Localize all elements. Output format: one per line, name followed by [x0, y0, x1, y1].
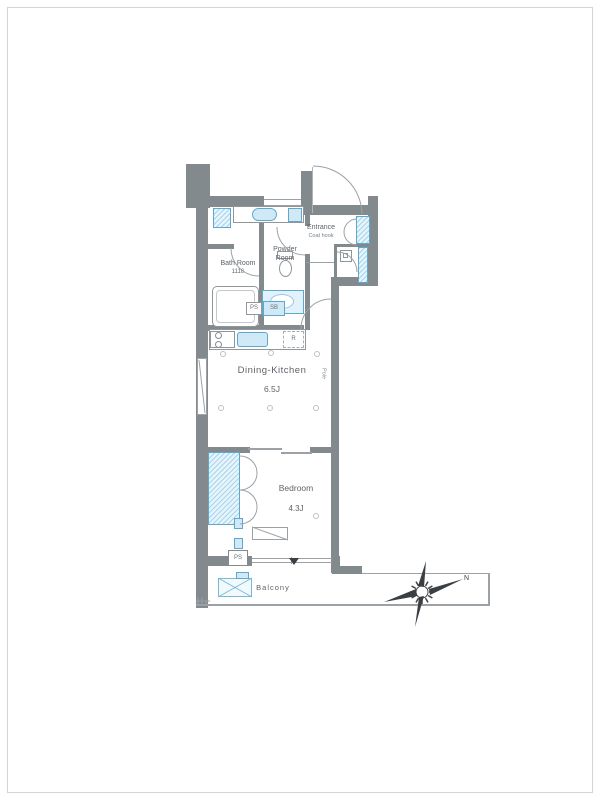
wall-right-main	[331, 286, 339, 573]
room-size-bedroom: 4.3J	[244, 504, 348, 514]
image-border-frame	[7, 7, 593, 793]
ceiling-light-icon	[313, 405, 319, 411]
ceiling-light-icon	[220, 351, 226, 357]
ceiling-light-icon	[314, 351, 320, 357]
floor-plan-canvas: R PS SB PS Bath Room 1116 Powder Room En…	[0, 0, 600, 800]
window-top	[264, 199, 301, 206]
kitchen-stove	[210, 331, 235, 348]
balcony-edge-right	[488, 573, 490, 606]
entrance-storage-strip	[358, 247, 368, 283]
refrigerator-label: R	[284, 336, 303, 343]
sliding-door-panel-2	[281, 452, 312, 454]
evacuation-hatch-tag	[236, 572, 249, 579]
ceiling-light-icon	[313, 513, 319, 519]
room-label-entrance: Entrance	[294, 224, 348, 232]
pipe-shaft-upper-label: PS	[247, 305, 261, 312]
balcony-edge-bottom	[196, 604, 490, 606]
room-note-coat-hook: Coat hook	[294, 233, 348, 240]
pipe-shaft-lower: PS	[228, 550, 248, 566]
refrigerator-space: R	[283, 331, 304, 348]
room-label-bath: Bath Room	[214, 260, 262, 268]
ceiling-light-icon	[218, 405, 224, 411]
wall-bath-top	[208, 244, 234, 249]
window-left-wall	[197, 358, 207, 415]
pipe-shaft-lower-label: PS	[229, 555, 247, 562]
sliding-door-panel-1	[248, 448, 282, 450]
sb-box-label: SB	[264, 305, 284, 312]
wall-step-right	[331, 277, 378, 286]
pipe-shaft-upper: PS	[246, 302, 262, 315]
room-size-dining-kitchen: 6.5J	[213, 384, 331, 394]
wall-dk-bedroom-right	[310, 447, 339, 453]
room-label-dining-kitchen: Dining-Kitchen	[213, 365, 331, 376]
room-label-powder-2: Room	[263, 255, 307, 263]
washing-machine-space	[213, 208, 231, 228]
wall-fixture-2	[234, 538, 243, 549]
room-size-bath: 1116	[214, 269, 262, 276]
wall-balcony-stub	[332, 566, 362, 574]
ceiling-light-icon	[267, 405, 273, 411]
wall-fixture-1	[234, 518, 243, 529]
room-label-balcony: Balcony	[240, 583, 306, 592]
bedroom-closet	[208, 452, 240, 525]
sb-box: SB	[263, 301, 285, 316]
window-center-marker-icon	[289, 558, 299, 565]
stove-burner-2	[215, 341, 222, 348]
shoe-closet	[356, 216, 370, 244]
pole-note-vertical: Pole	[320, 368, 327, 379]
kitchen-sink	[237, 332, 268, 347]
balcony-edge-top-right	[362, 573, 488, 574]
room-label-powder-1: Powder	[263, 246, 307, 254]
stove-burner-1	[215, 332, 222, 339]
entrance-step-line	[306, 262, 334, 263]
entrance-door-leaf	[312, 167, 313, 213]
bedroom-counter	[252, 527, 288, 540]
wall-powder-hall-lower	[305, 254, 310, 330]
room-label-bedroom: Bedroom	[244, 483, 348, 493]
counter-cabinet	[288, 208, 302, 222]
ceiling-light-icon	[268, 350, 274, 356]
utility-box-inner	[343, 253, 348, 258]
counter-sink	[252, 208, 277, 221]
wall-nook-left	[334, 244, 337, 286]
